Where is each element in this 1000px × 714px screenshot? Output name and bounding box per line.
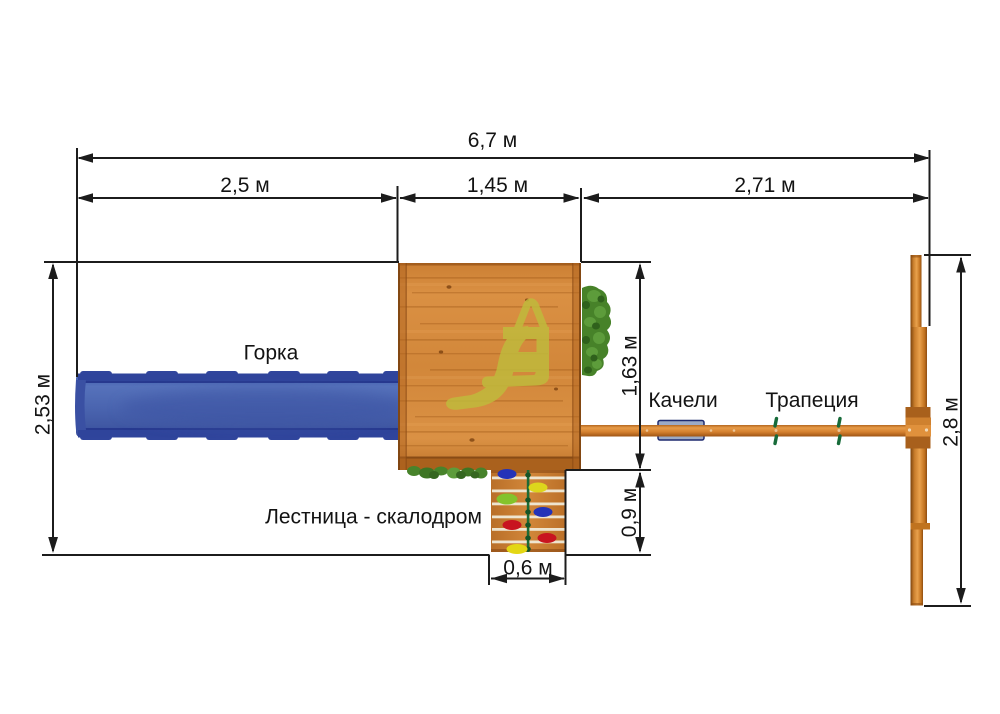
svg-text:0,9 м: 0,9 м: [618, 488, 641, 537]
svg-text:1,63 м: 1,63 м: [619, 335, 642, 396]
svg-text:2,71 м: 2,71 м: [734, 174, 795, 197]
svg-text:Трапеция: Трапеция: [765, 389, 858, 412]
svg-text:6,7 м: 6,7 м: [468, 129, 517, 152]
svg-text:Качели: Качели: [648, 389, 717, 412]
svg-text:Горка: Горка: [244, 342, 299, 365]
svg-text:2,8 м: 2,8 м: [940, 397, 963, 446]
svg-text:2,53 м: 2,53 м: [32, 374, 55, 435]
svg-text:2,5 м: 2,5 м: [220, 174, 269, 197]
svg-text:0,6 м: 0,6 м: [503, 557, 552, 580]
svg-text:1,45 м: 1,45 м: [467, 174, 528, 197]
svg-text:Лестница - скалодром: Лестница - скалодром: [265, 506, 482, 529]
